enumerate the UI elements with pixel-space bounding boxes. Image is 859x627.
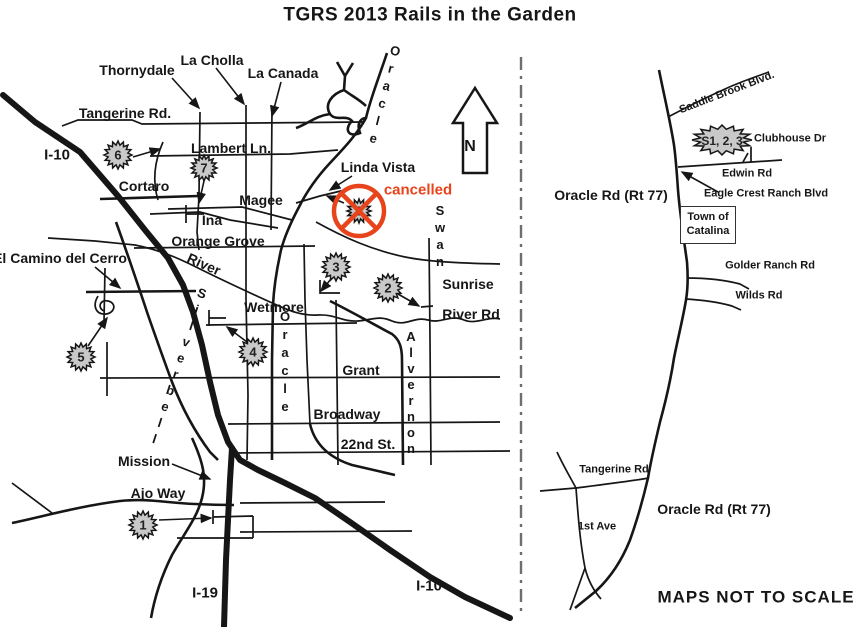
- label-alvernon: Alvernon: [405, 329, 418, 457]
- stop-marker-5: 5: [67, 343, 95, 371]
- road-bl-diagonal: [12, 483, 52, 513]
- label-el-camino-del-cerro: El Camino del Cerro: [0, 251, 127, 265]
- label-lambert-ln: Lambert Ln.: [191, 141, 271, 155]
- label-orange-grove: Orange Grove: [171, 234, 264, 248]
- arrow-la-canada: [272, 82, 281, 116]
- road-la-cholla: [246, 105, 248, 460]
- label-north: N: [464, 139, 476, 155]
- road-stop1-streets: [177, 510, 253, 538]
- label-1st-ave: 1st Ave: [578, 522, 616, 533]
- stop-marker-8-cancelled: 8: [334, 186, 384, 236]
- stop-marker-3: 3: [322, 253, 350, 281]
- road-la-canada: [271, 107, 272, 230]
- stop-number-1: 1: [139, 518, 146, 533]
- road-wilds: [686, 299, 741, 310]
- road-golder-ranch: [687, 278, 749, 289]
- label-cancelled: cancelled: [384, 183, 452, 198]
- label-river-rd: River Rd: [442, 307, 500, 321]
- road-country-club: [336, 300, 338, 465]
- stop-label-s123: S1, 2, 3: [701, 134, 743, 148]
- stop-number-6: 6: [114, 148, 121, 163]
- label-golder-ranch-rd: Golder Ranch Rd: [725, 261, 815, 272]
- label-cortaro: Cortaro: [119, 179, 170, 193]
- arrow-stop1: [159, 518, 211, 520]
- road-1st-ave-spur: [570, 568, 585, 610]
- stop-marker-4: 4: [239, 338, 267, 366]
- stub-near-4: [209, 310, 226, 326]
- stop-marker-1: 1: [129, 511, 157, 539]
- town-box-line2: Catalina: [687, 225, 730, 239]
- label-edwin-rd: Edwin Rd: [722, 169, 772, 180]
- label-broadway: Broadway: [314, 407, 381, 421]
- stop-number-2: 2: [384, 281, 391, 296]
- label-wilds-rd: Wilds Rd: [736, 291, 783, 302]
- label-sunrise: Sunrise: [442, 277, 493, 291]
- label-eagle-crest-ranch-blvd: Eagle Crest Ranch Blvd: [704, 189, 828, 200]
- stop-number-7: 7: [200, 161, 207, 176]
- label-oracle-rd-upper: Oracle Rd (Rt 77): [554, 188, 668, 202]
- label-ina: Ina: [202, 213, 222, 227]
- road-tangerine-right: [540, 478, 649, 491]
- label-tangerine-rd: Tangerine Rd.: [79, 106, 171, 120]
- arrow-el-camino: [95, 267, 120, 288]
- stub-near-2: [421, 306, 433, 307]
- stub-near-3: [320, 280, 340, 293]
- label-thornydale: Thornydale: [99, 63, 174, 77]
- label-i10-nw: I-10: [44, 148, 70, 163]
- road-el-camino: [86, 291, 196, 292]
- arrow-thornydale: [172, 78, 199, 108]
- label-oracle-rd-lower: Oracle Rd (Rt 77): [657, 502, 771, 516]
- road-broadway: [228, 422, 500, 424]
- arrow-la-cholla: [216, 68, 244, 104]
- label-wetmore: Wetmore: [244, 300, 304, 314]
- label-22nd-st: 22nd St.: [341, 437, 395, 451]
- stop-number-3: 3: [332, 260, 339, 275]
- label-grant: Grant: [342, 363, 379, 377]
- label-tangerine-rd-right: Tangerine Rd: [579, 465, 648, 476]
- stop-marker-6: 6: [104, 141, 132, 169]
- label-i10-se: I-10: [416, 579, 442, 594]
- north-arrow: [453, 88, 497, 173]
- stop-marker-2: 2: [374, 274, 402, 302]
- label-clubhouse-dr: Clubhouse Dr: [754, 134, 826, 145]
- label-la-canada: La Canada: [248, 66, 319, 80]
- road-clubhouse-stub: [743, 147, 751, 162]
- town-box-line1: Town of: [687, 211, 728, 225]
- road-tangerine-nw-branch: [557, 452, 576, 488]
- label-linda-vista: Linda Vista: [341, 160, 415, 174]
- town-of-catalina-box: Town of Catalina: [680, 206, 736, 244]
- label-oracle-mid: Oracle: [279, 309, 292, 417]
- label-i19: I-19: [192, 586, 218, 601]
- label-maps-not-to-scale: MAPS NOT TO SCALE: [657, 589, 854, 606]
- page-title: TGRS 2013 Rails in the Garden: [283, 6, 576, 25]
- arrow-stop2: [398, 294, 419, 306]
- map-page: 1 2 3 4 5 6 7 8 S1, 2, 3 TGRS 2013 Rails…: [0, 0, 859, 627]
- label-mission: Mission: [118, 454, 170, 468]
- road-edwin: [678, 160, 782, 167]
- road-campbell: [304, 244, 310, 424]
- arrow-stop5: [88, 318, 107, 346]
- stop-marker-7: 7: [191, 155, 217, 181]
- label-magee: Magee: [239, 193, 283, 207]
- road-ajo-way: [12, 500, 234, 523]
- label-swan: Swan: [434, 203, 447, 271]
- arrow-stop3: [321, 279, 331, 291]
- arrow-stop4: [227, 327, 247, 342]
- label-la-cholla: La Cholla: [180, 53, 243, 67]
- stop-number-4: 4: [249, 345, 257, 360]
- label-ajo-way: Ajo Way: [131, 486, 186, 500]
- road-swan: [429, 238, 431, 465]
- stop-number-5: 5: [77, 350, 84, 365]
